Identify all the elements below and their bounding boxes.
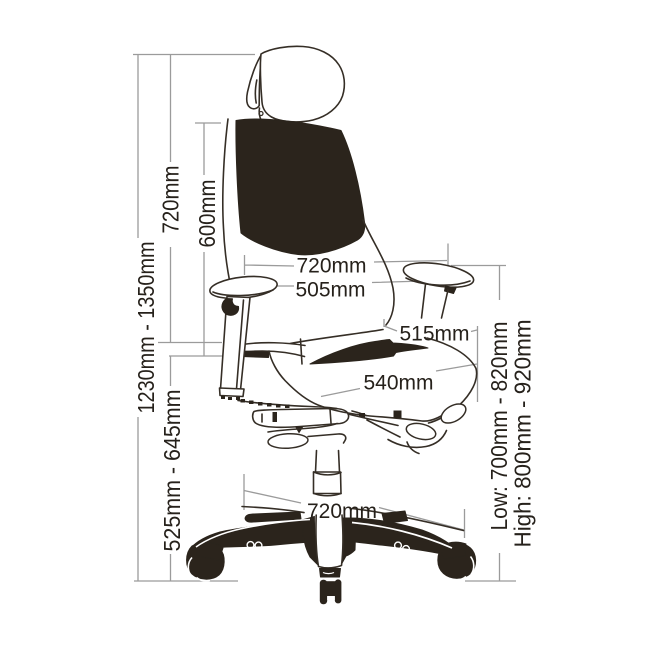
- svg-text:505mm: 505mm: [295, 279, 365, 302]
- svg-text:720mm: 720mm: [296, 255, 366, 278]
- svg-text:Low: 700mm - 820mm: Low: 700mm - 820mm: [486, 322, 512, 531]
- svg-text:720mm: 720mm: [158, 166, 184, 234]
- svg-text:High: 800mm - 920mm: High: 800mm - 920mm: [510, 320, 536, 548]
- svg-text:525mm - 645mm: 525mm - 645mm: [159, 390, 185, 552]
- svg-text:720mm: 720mm: [307, 500, 377, 523]
- svg-text:515mm: 515mm: [399, 323, 469, 346]
- svg-text:600mm: 600mm: [194, 180, 220, 248]
- svg-text:1230mm - 1350mm: 1230mm - 1350mm: [133, 242, 159, 414]
- svg-text:540mm: 540mm: [363, 372, 433, 395]
